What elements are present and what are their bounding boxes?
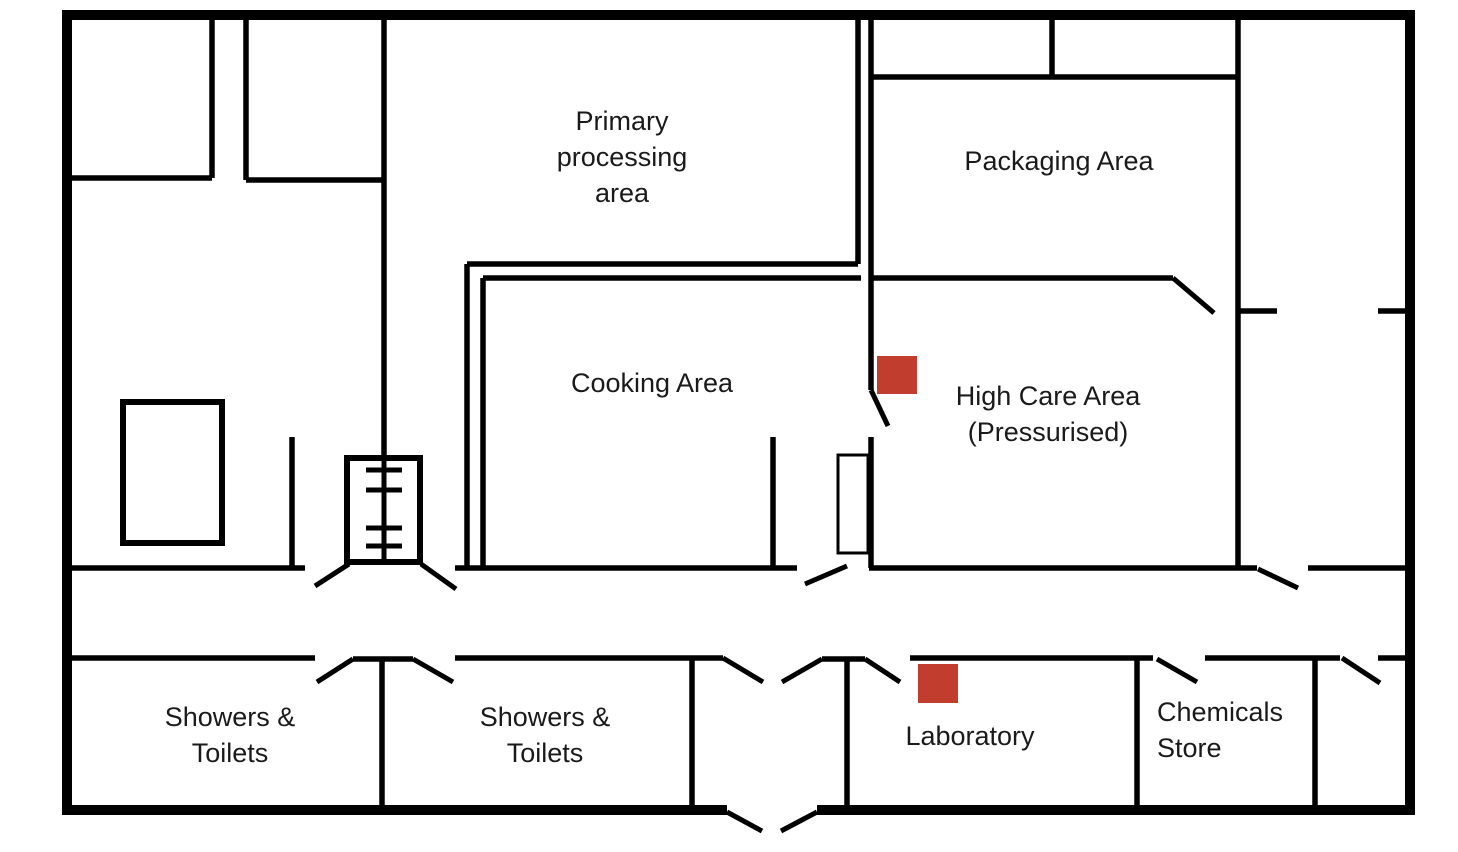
label-line: (Pressurised) <box>956 415 1141 451</box>
airlock-detail <box>366 458 402 562</box>
top-left-room-walls <box>67 15 384 458</box>
open-door-leaf <box>838 455 868 553</box>
label-line: Packaging Area <box>964 144 1153 180</box>
label-line: Laboratory <box>905 719 1034 755</box>
room-label-packaging: Packaging Area <box>964 144 1153 180</box>
room-label-primary-processing: Primary processing area <box>557 104 688 212</box>
equipment-rectangle <box>123 402 222 543</box>
room-label-showers-toilets-2: Showers & Toilets <box>480 700 611 772</box>
room-label-showers-toilets-1: Showers & Toilets <box>165 700 296 772</box>
label-line: Cooking Area <box>571 366 733 402</box>
floor-plan: Primary processing area Packaging Area C… <box>0 0 1458 852</box>
label-line: area <box>557 176 688 212</box>
top-right-room-walls <box>871 15 1238 567</box>
double-walls <box>467 15 871 566</box>
room-label-laboratory: Laboratory <box>905 719 1034 755</box>
exterior-door-swings <box>727 812 817 831</box>
label-line: High Care Area <box>956 379 1141 415</box>
label-line: Store <box>1157 731 1283 767</box>
room-label-cooking: Cooking Area <box>571 366 733 402</box>
room-label-chemicals-store: Chemicals Store <box>1157 695 1283 767</box>
room-label-high-care: High Care Area (Pressurised) <box>956 379 1141 451</box>
airlock-door-swings <box>315 564 456 589</box>
label-line: Showers & <box>165 700 296 736</box>
corridor-bottom-wall <box>67 658 1410 659</box>
laboratory-marker <box>918 664 958 703</box>
label-line: Chemicals <box>1157 695 1283 731</box>
high-care-marker <box>877 356 917 394</box>
label-line: Toilets <box>480 736 611 772</box>
label-line: Toilets <box>165 736 296 772</box>
label-line: processing <box>557 140 688 176</box>
label-line: Showers & <box>480 700 611 736</box>
label-line: Primary <box>557 104 688 140</box>
